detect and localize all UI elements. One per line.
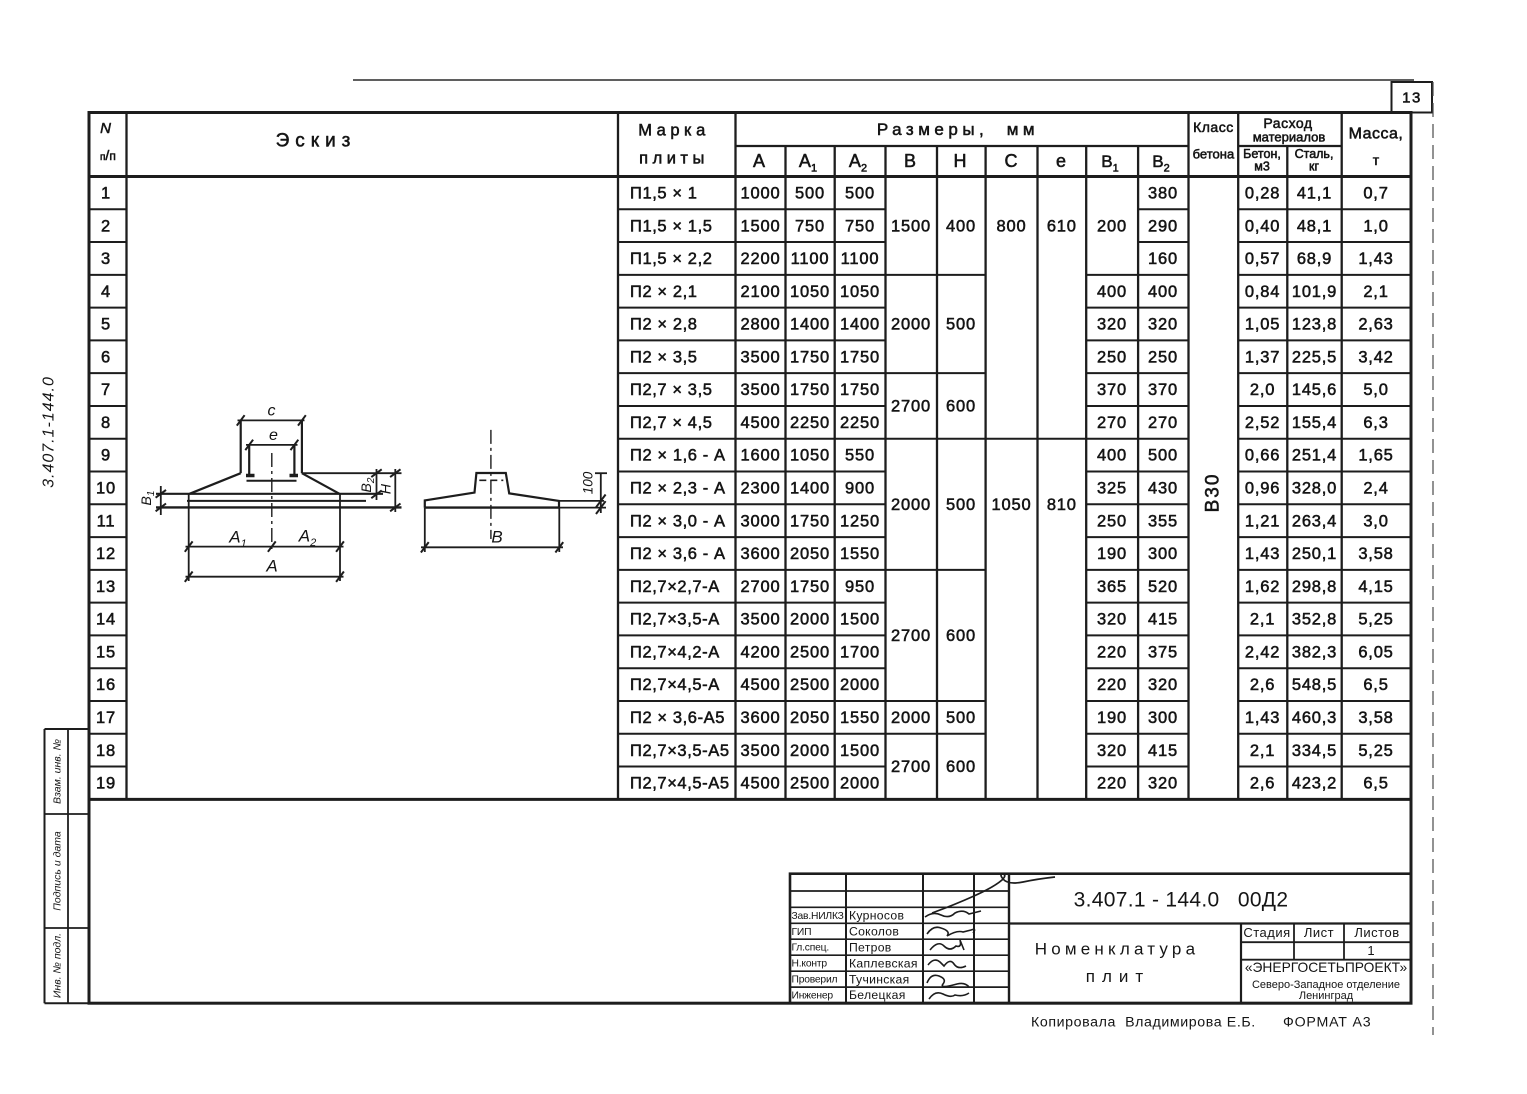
svg-text:0,96: 0,96 xyxy=(1245,480,1280,498)
svg-text:3600: 3600 xyxy=(741,709,781,727)
svg-text:Гл.спец.: Гл.спец. xyxy=(792,943,829,954)
svg-text:48,1: 48,1 xyxy=(1297,217,1332,235)
svg-text:2000: 2000 xyxy=(891,496,931,514)
svg-text:Класс: Класс xyxy=(1193,119,1234,135)
svg-text:2,4: 2,4 xyxy=(1363,480,1388,498)
svg-text:7: 7 xyxy=(101,381,111,399)
svg-text:2,1: 2,1 xyxy=(1363,283,1388,301)
svg-text:1400: 1400 xyxy=(840,316,880,334)
svg-text:750: 750 xyxy=(845,217,875,235)
svg-text:415: 415 xyxy=(1148,742,1178,760)
svg-text:Расход: Расход xyxy=(1263,115,1312,131)
svg-text:1,0: 1,0 xyxy=(1363,217,1388,235)
svg-text:4: 4 xyxy=(101,283,111,301)
svg-text:ГИП: ГИП xyxy=(792,927,812,938)
svg-text:160: 160 xyxy=(1148,250,1178,268)
svg-text:220: 220 xyxy=(1097,775,1127,793)
svg-text:Листов: Листов xyxy=(1354,925,1399,940)
svg-text:2050: 2050 xyxy=(790,709,830,727)
svg-text:300: 300 xyxy=(1148,545,1178,563)
svg-text:370: 370 xyxy=(1148,381,1178,399)
svg-text:15: 15 xyxy=(96,643,116,661)
svg-text:«ЭНЕРГОСЕТЬПРОЕКТ»: «ЭНЕРГОСЕТЬПРОЕКТ» xyxy=(1245,960,1408,975)
svg-text:Лист: Лист xyxy=(1304,925,1334,940)
svg-text:800: 800 xyxy=(997,217,1027,235)
svg-text:П2 × 1,6 - А: П2 × 1,6 - А xyxy=(630,447,726,465)
svg-text:2000: 2000 xyxy=(840,775,880,793)
svg-text:3500: 3500 xyxy=(741,611,781,629)
svg-text:2000: 2000 xyxy=(891,709,931,727)
svg-text:13: 13 xyxy=(1402,90,1422,107)
svg-text:10: 10 xyxy=(96,480,116,498)
svg-text:1750: 1750 xyxy=(790,381,830,399)
svg-text:290: 290 xyxy=(1148,217,1178,235)
svg-text:423,2: 423,2 xyxy=(1292,775,1337,793)
svg-text:8: 8 xyxy=(101,414,111,432)
svg-text:190: 190 xyxy=(1097,709,1127,727)
svg-text:1,21: 1,21 xyxy=(1245,512,1280,530)
svg-text:12: 12 xyxy=(96,545,116,563)
svg-text:Н.контр: Н.контр xyxy=(792,959,828,970)
svg-text:250: 250 xyxy=(1148,348,1178,366)
svg-text:1,43: 1,43 xyxy=(1358,250,1393,268)
svg-text:Номенклатура: Номенклатура xyxy=(1035,939,1200,958)
svg-text:190: 190 xyxy=(1097,545,1127,563)
svg-text:Ленинград: Ленинград xyxy=(1299,990,1354,1002)
svg-text:П2,7 × 4,5: П2,7 × 4,5 xyxy=(630,414,713,432)
svg-text:1050: 1050 xyxy=(790,283,830,301)
svg-text:298,8: 298,8 xyxy=(1292,578,1337,596)
svg-text:1: 1 xyxy=(101,185,111,203)
svg-text:3,58: 3,58 xyxy=(1358,545,1393,563)
svg-text:18: 18 xyxy=(96,742,116,760)
svg-text:2,52: 2,52 xyxy=(1245,414,1280,432)
svg-text:1500: 1500 xyxy=(741,217,781,235)
svg-text:2100: 2100 xyxy=(741,283,781,301)
svg-text:1250: 1250 xyxy=(840,512,880,530)
svg-text:N: N xyxy=(100,120,112,137)
svg-text:П2 × 3,5: П2 × 3,5 xyxy=(630,348,698,366)
svg-text:500: 500 xyxy=(795,185,825,203)
svg-text:263,4: 263,4 xyxy=(1292,512,1337,530)
svg-text:ФОРМАТ А3: ФОРМАТ А3 xyxy=(1283,1014,1371,1030)
svg-text:320: 320 xyxy=(1097,742,1127,760)
svg-text:0,57: 0,57 xyxy=(1245,250,1280,268)
svg-text:6: 6 xyxy=(101,348,111,366)
svg-text:Масса,: Масса, xyxy=(1349,125,1404,142)
svg-text:Инженер: Инженер xyxy=(792,991,834,1002)
svg-text:3600: 3600 xyxy=(741,545,781,563)
svg-text:2500: 2500 xyxy=(790,775,830,793)
svg-text:В30: В30 xyxy=(1203,473,1224,513)
svg-text:17: 17 xyxy=(96,709,116,727)
svg-text:Стадия: Стадия xyxy=(1243,925,1290,940)
svg-text:Н: Н xyxy=(954,151,967,171)
svg-text:250,1: 250,1 xyxy=(1292,545,1337,563)
svg-text:бетона: бетона xyxy=(1193,146,1235,161)
svg-text:600: 600 xyxy=(946,758,976,776)
svg-text:1,43: 1,43 xyxy=(1245,709,1280,727)
svg-text:2,6: 2,6 xyxy=(1250,676,1275,694)
svg-text:2,42: 2,42 xyxy=(1245,643,1280,661)
svg-text:Размеры, мм: Размеры, мм xyxy=(877,120,1039,139)
svg-text:2,63: 2,63 xyxy=(1358,316,1393,334)
svg-text:100: 100 xyxy=(581,471,596,494)
svg-text:П2 × 3,6 - А: П2 × 3,6 - А xyxy=(630,545,726,563)
svg-text:1750: 1750 xyxy=(790,578,830,596)
svg-text:1500: 1500 xyxy=(891,217,931,235)
svg-text:9: 9 xyxy=(101,447,111,465)
svg-text:270: 270 xyxy=(1097,414,1127,432)
svg-text:2,0: 2,0 xyxy=(1250,381,1275,399)
svg-text:2: 2 xyxy=(101,217,111,235)
svg-text:2000: 2000 xyxy=(840,676,880,694)
svg-text:с: с xyxy=(268,402,276,419)
svg-text:Проверил: Проверил xyxy=(792,975,838,986)
svg-text:Каплевская: Каплевская xyxy=(849,956,918,970)
svg-text:2700: 2700 xyxy=(741,578,781,596)
svg-text:1050: 1050 xyxy=(840,283,880,301)
svg-text:Н: Н xyxy=(377,483,393,494)
svg-text:1750: 1750 xyxy=(790,348,830,366)
svg-text:550: 550 xyxy=(845,447,875,465)
svg-text:400: 400 xyxy=(1148,283,1178,301)
svg-text:2500: 2500 xyxy=(790,676,830,694)
svg-text:123,8: 123,8 xyxy=(1292,316,1337,334)
svg-text:0,40: 0,40 xyxy=(1245,217,1280,235)
svg-text:4500: 4500 xyxy=(741,676,781,694)
svg-text:16: 16 xyxy=(96,676,116,694)
svg-text:Соколов: Соколов xyxy=(849,924,899,938)
svg-text:3500: 3500 xyxy=(741,348,781,366)
svg-text:382,3: 382,3 xyxy=(1292,643,1337,661)
svg-text:2500: 2500 xyxy=(790,643,830,661)
svg-text:320: 320 xyxy=(1097,316,1127,334)
svg-text:1050: 1050 xyxy=(992,496,1032,514)
svg-text:1,62: 1,62 xyxy=(1245,578,1280,596)
svg-text:400: 400 xyxy=(1097,283,1127,301)
svg-text:2200: 2200 xyxy=(741,250,781,268)
svg-text:500: 500 xyxy=(946,496,976,514)
svg-text:П2,7×4,2-А: П2,7×4,2-А xyxy=(630,643,720,661)
svg-text:3500: 3500 xyxy=(741,381,781,399)
svg-text:365: 365 xyxy=(1097,578,1127,596)
svg-text:м3: м3 xyxy=(1254,159,1270,173)
svg-text:750: 750 xyxy=(795,217,825,235)
svg-text:е: е xyxy=(1056,151,1066,171)
svg-text:0,66: 0,66 xyxy=(1245,447,1280,465)
svg-text:320: 320 xyxy=(1148,676,1178,694)
svg-text:2700: 2700 xyxy=(891,758,931,776)
svg-text:400: 400 xyxy=(1097,447,1127,465)
svg-text:415: 415 xyxy=(1148,611,1178,629)
svg-text:3,42: 3,42 xyxy=(1358,348,1393,366)
svg-text:250: 250 xyxy=(1097,512,1127,530)
svg-text:1750: 1750 xyxy=(790,512,830,530)
svg-text:1100: 1100 xyxy=(841,250,880,268)
svg-text:кг: кг xyxy=(1309,159,1319,173)
svg-text:900: 900 xyxy=(845,480,875,498)
svg-text:1,65: 1,65 xyxy=(1358,447,1393,465)
svg-text:220: 220 xyxy=(1097,643,1127,661)
svg-text:1400: 1400 xyxy=(790,480,830,498)
svg-text:е: е xyxy=(269,427,278,444)
svg-text:4500: 4500 xyxy=(741,414,781,432)
svg-text:2250: 2250 xyxy=(840,414,880,432)
svg-text:225,5: 225,5 xyxy=(1292,348,1337,366)
svg-text:380: 380 xyxy=(1148,185,1178,203)
svg-text:П2 × 3,6-А5: П2 × 3,6-А5 xyxy=(630,709,725,727)
svg-text:320: 320 xyxy=(1148,316,1178,334)
svg-text:4,15: 4,15 xyxy=(1358,578,1393,596)
svg-text:19: 19 xyxy=(96,775,116,793)
svg-text:500: 500 xyxy=(845,185,875,203)
svg-text:200: 200 xyxy=(1097,217,1127,235)
svg-text:Марка: Марка xyxy=(638,122,710,140)
svg-text:1500: 1500 xyxy=(840,611,880,629)
svg-text:1,37: 1,37 xyxy=(1245,348,1280,366)
svg-text:П2,7 × 3,5: П2,7 × 3,5 xyxy=(630,381,713,399)
svg-text:Зав.НИЛКЗ: Зав.НИЛКЗ xyxy=(792,911,844,922)
svg-text:500: 500 xyxy=(946,709,976,727)
svg-text:1750: 1750 xyxy=(840,381,880,399)
svg-text:548,5: 548,5 xyxy=(1292,676,1337,694)
svg-text:2000: 2000 xyxy=(891,316,931,334)
svg-text:1100: 1100 xyxy=(791,250,830,268)
svg-text:950: 950 xyxy=(845,578,875,596)
svg-text:145,6: 145,6 xyxy=(1292,381,1337,399)
svg-text:П2,7×3,5-А: П2,7×3,5-А xyxy=(630,611,720,629)
svg-text:т: т xyxy=(1373,152,1380,168)
svg-text:14: 14 xyxy=(96,611,116,629)
svg-text:5,0: 5,0 xyxy=(1363,381,1388,399)
svg-text:1500: 1500 xyxy=(840,742,880,760)
svg-text:251,4: 251,4 xyxy=(1292,447,1337,465)
svg-text:П2 × 3,0 - А: П2 × 3,0 - А xyxy=(630,512,726,530)
svg-text:П2 × 2,1: П2 × 2,1 xyxy=(630,283,698,301)
svg-text:Эскиз: Эскиз xyxy=(276,130,357,151)
svg-text:плиты: плиты xyxy=(639,150,709,168)
svg-text:0,28: 0,28 xyxy=(1245,185,1280,203)
svg-text:6,3: 6,3 xyxy=(1363,414,1388,432)
svg-text:2,6: 2,6 xyxy=(1250,775,1275,793)
svg-text:плит: плит xyxy=(1086,967,1150,986)
svg-text:610: 610 xyxy=(1047,217,1077,235)
svg-text:810: 810 xyxy=(1047,496,1077,514)
svg-text:352,8: 352,8 xyxy=(1292,611,1337,629)
svg-text:325: 325 xyxy=(1097,480,1127,498)
svg-text:3,0: 3,0 xyxy=(1363,512,1388,530)
svg-text:1400: 1400 xyxy=(790,316,830,334)
svg-text:3.407.1 - 144.0 00Д2: 3.407.1 - 144.0 00Д2 xyxy=(1074,889,1289,912)
svg-text:2000: 2000 xyxy=(790,611,830,629)
svg-text:334,5: 334,5 xyxy=(1292,742,1337,760)
svg-text:11: 11 xyxy=(97,512,116,530)
svg-text:5: 5 xyxy=(101,316,111,334)
svg-text:155,4: 155,4 xyxy=(1292,414,1337,432)
svg-text:101,9: 101,9 xyxy=(1292,283,1337,301)
svg-text:0,84: 0,84 xyxy=(1245,283,1280,301)
svg-text:460,3: 460,3 xyxy=(1292,709,1337,727)
svg-text:1050: 1050 xyxy=(790,447,830,465)
svg-text:600: 600 xyxy=(946,398,976,416)
svg-text:500: 500 xyxy=(1148,447,1178,465)
svg-text:430: 430 xyxy=(1148,480,1178,498)
svg-text:1,05: 1,05 xyxy=(1245,316,1280,334)
svg-text:П2 × 2,8: П2 × 2,8 xyxy=(630,316,698,334)
svg-text:5,25: 5,25 xyxy=(1358,611,1393,629)
svg-text:4500: 4500 xyxy=(741,775,781,793)
svg-text:П2 × 2,3 - А: П2 × 2,3 - А xyxy=(630,480,726,498)
svg-text:А: А xyxy=(753,151,765,171)
svg-text:П2,7×4,5-А5: П2,7×4,5-А5 xyxy=(630,775,730,793)
svg-text:2250: 2250 xyxy=(790,414,830,432)
svg-text:П1,5 × 2,2: П1,5 × 2,2 xyxy=(630,250,713,268)
svg-text:Инв. № подл.: Инв. № подл. xyxy=(52,933,64,998)
svg-text:1600: 1600 xyxy=(741,447,781,465)
svg-text:2,1: 2,1 xyxy=(1250,611,1275,629)
svg-text:5,25: 5,25 xyxy=(1358,742,1393,760)
svg-text:материалов: материалов xyxy=(1253,129,1326,144)
svg-text:3: 3 xyxy=(101,250,111,268)
svg-text:300: 300 xyxy=(1148,709,1178,727)
svg-text:П2,7×3,5-А5: П2,7×3,5-А5 xyxy=(630,742,730,760)
svg-text:Тучинская: Тучинская xyxy=(849,972,910,986)
svg-text:1550: 1550 xyxy=(840,545,880,563)
svg-text:370: 370 xyxy=(1097,381,1127,399)
svg-text:320: 320 xyxy=(1148,775,1178,793)
svg-text:2800: 2800 xyxy=(741,316,781,334)
svg-text:68,9: 68,9 xyxy=(1297,250,1332,268)
svg-text:41,1: 41,1 xyxy=(1297,185,1332,203)
svg-text:С: С xyxy=(1005,151,1018,171)
svg-text:355: 355 xyxy=(1148,512,1178,530)
svg-text:2,1: 2,1 xyxy=(1250,742,1275,760)
svg-text:250: 250 xyxy=(1097,348,1127,366)
svg-text:Подпись и дата: Подпись и дата xyxy=(52,831,64,911)
svg-text:1000: 1000 xyxy=(741,185,781,203)
svg-text:2050: 2050 xyxy=(790,545,830,563)
svg-text:6,05: 6,05 xyxy=(1358,643,1393,661)
svg-text:270: 270 xyxy=(1148,414,1178,432)
svg-text:П2,7×4,5-А: П2,7×4,5-А xyxy=(630,676,720,694)
svg-text:Белецкая: Белецкая xyxy=(849,988,906,1002)
svg-text:6,5: 6,5 xyxy=(1363,775,1388,793)
svg-text:3,58: 3,58 xyxy=(1358,709,1393,727)
svg-text:0,7: 0,7 xyxy=(1363,185,1388,203)
svg-text:320: 320 xyxy=(1097,611,1127,629)
svg-text:Петров: Петров xyxy=(849,940,892,954)
svg-text:1700: 1700 xyxy=(840,643,880,661)
svg-text:П2,7×2,7-А: П2,7×2,7-А xyxy=(630,578,720,596)
svg-text:Курносов: Курносов xyxy=(849,908,904,922)
svg-text:2700: 2700 xyxy=(891,627,931,645)
svg-text:Взам. инв. №: Взам. инв. № xyxy=(52,739,64,804)
svg-text:520: 520 xyxy=(1148,578,1178,596)
svg-text:П1,5 × 1,5: П1,5 × 1,5 xyxy=(630,217,713,235)
svg-text:1750: 1750 xyxy=(840,348,880,366)
svg-text:А: А xyxy=(265,556,277,575)
svg-text:3500: 3500 xyxy=(741,742,781,760)
svg-text:3.407.1-144.0: 3.407.1-144.0 xyxy=(40,376,57,488)
svg-text:328,0: 328,0 xyxy=(1292,480,1337,498)
svg-text:3000: 3000 xyxy=(741,512,781,530)
svg-text:1,43: 1,43 xyxy=(1245,545,1280,563)
svg-text:Копировала Владимирова Е.Б.: Копировала Владимирова Е.Б. xyxy=(1031,1014,1256,1030)
svg-text:500: 500 xyxy=(946,316,976,334)
svg-text:2700: 2700 xyxy=(891,398,931,416)
svg-text:600: 600 xyxy=(946,627,976,645)
svg-text:6,5: 6,5 xyxy=(1363,676,1388,694)
svg-text:2300: 2300 xyxy=(741,480,781,498)
svg-text:400: 400 xyxy=(946,217,976,235)
svg-text:П1,5 × 1: П1,5 × 1 xyxy=(630,185,698,203)
svg-text:4200: 4200 xyxy=(741,643,781,661)
svg-text:1: 1 xyxy=(1367,943,1374,958)
svg-text:375: 375 xyxy=(1148,643,1178,661)
svg-text:1550: 1550 xyxy=(840,709,880,727)
svg-text:220: 220 xyxy=(1097,676,1127,694)
svg-text:2000: 2000 xyxy=(790,742,830,760)
svg-text:В: В xyxy=(904,151,916,171)
svg-text:В: В xyxy=(491,527,502,546)
svg-text:13: 13 xyxy=(96,578,116,596)
